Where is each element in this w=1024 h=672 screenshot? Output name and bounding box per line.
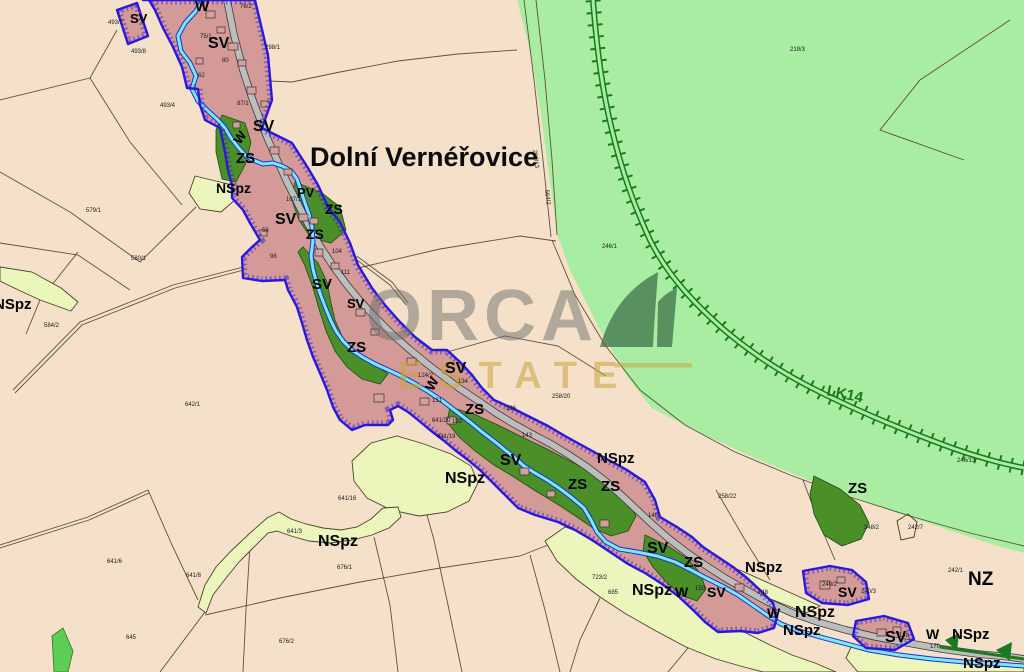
parcel-number-136: 136 <box>506 406 517 412</box>
zone-label-sv: SV <box>500 452 522 469</box>
zone-label-nspz: NSpz <box>632 582 672 599</box>
parcel-number-641-3: 641/3 <box>287 529 303 535</box>
zone-label-w: W <box>926 626 940 642</box>
parcel-number-641-20: 641/20 <box>432 418 451 424</box>
zone-label-zs: ZS <box>568 476 587 493</box>
zone-label-zs: ZS <box>684 554 703 571</box>
zone-label-zs: ZS <box>347 339 366 356</box>
zone-label-nspz: NSpz <box>0 296 32 313</box>
zone-label-zs: ZS <box>325 201 343 217</box>
parcel-number-240-3: 240/3 <box>861 589 877 595</box>
parcel-number-87-1: 87/1 <box>237 101 249 107</box>
parcel-number-641-16: 641/16 <box>338 496 357 502</box>
parcel-number-723-2: 723/2 <box>592 575 608 581</box>
parcel-number-641-6: 641/6 <box>107 559 123 565</box>
zone-label-pv: PV <box>297 185 315 200</box>
parcel-number-111: 111 <box>341 270 351 276</box>
parcel-number-676-2: 676/2 <box>279 639 295 645</box>
zone-label-nspz: NSpz <box>745 559 783 576</box>
zone-label-sv: SV <box>312 276 332 293</box>
zone-label-w: W <box>767 605 781 621</box>
zone-label-sv: SV <box>707 584 726 600</box>
zone-label-nspz: NSpz <box>952 626 990 643</box>
parcel-number-132: 132 <box>452 419 463 425</box>
zone-label-nspz: NSpz <box>795 604 835 621</box>
parcel-number-580-1: 580/1 <box>131 256 147 262</box>
parcel-number-584-2: 584/2 <box>44 323 60 329</box>
zone-label-zs: ZS <box>848 480 867 497</box>
parcel-number-76-2: 76/2 <box>240 4 252 10</box>
parcel-number-348-2: 348/2 <box>864 525 880 531</box>
zone-label-nspz: NSpz <box>445 470 485 487</box>
parcel-number-579-1: 579/1 <box>86 208 102 214</box>
zone-label-sv: SV <box>647 540 669 557</box>
parcel-number-219-3: 219/3 <box>790 47 806 53</box>
zone-label-nz: NZ <box>968 569 994 590</box>
zone-label-sv: SV <box>445 360 467 377</box>
zone-label-zs: ZS <box>306 226 324 242</box>
parcel-number-493-4: 493/4 <box>160 103 176 109</box>
parcel-number-685: 685 <box>608 590 619 596</box>
zone-label-w: W <box>675 584 689 600</box>
parcel-number-641-8: 641/8 <box>186 573 202 579</box>
zone-label-nspz: NSpz <box>318 533 358 550</box>
parcel-number-80: 80 <box>222 58 229 64</box>
parcel-number-641-19: 641/19 <box>437 434 456 440</box>
parcel-number-645: 645 <box>126 635 137 641</box>
parcel-number-104: 104 <box>332 249 343 255</box>
parcel-number-246-13: 246/13 <box>957 458 976 464</box>
zone-label-sv: SV <box>347 296 365 311</box>
parcel-number-148: 148 <box>648 513 659 519</box>
zone-label-sv: SV <box>253 118 275 135</box>
parcel-number-134: 134 <box>458 379 469 385</box>
zone-label-sv: SV <box>885 629 907 646</box>
parcel-number-258-20: 258/20 <box>552 394 571 400</box>
zone-label-zs: ZS <box>236 150 255 167</box>
parcel-number-58: 58 <box>262 228 269 234</box>
zone-label-sv: SV <box>275 211 297 228</box>
parcel-number-242-1: 242/1 <box>948 568 964 574</box>
parcel-number-298-1: 298/1 <box>265 45 281 51</box>
zone-label-sv: SV <box>838 584 857 600</box>
zone-label-w: W <box>195 0 210 15</box>
parcel-number-62: 62 <box>198 73 205 79</box>
zone-label-sv: SV <box>208 35 230 52</box>
parcel-number-131: 131 <box>432 398 443 404</box>
watermark-rule <box>614 363 692 368</box>
watermark-brand-text: ORCA <box>366 276 598 356</box>
zone-label-nspz: NSpz <box>963 655 1001 672</box>
parcel-number-98: 98 <box>270 254 277 260</box>
parcel-number-676-1: 676/1 <box>337 565 353 571</box>
zoning-map-canvas[interactable]: ORCA ESTATE Dolní Vernéřovice 493/7493/8… <box>0 0 1024 672</box>
parcel-number-493-7: 493/7 <box>108 20 124 26</box>
map-viewport[interactable]: ORCA ESTATE Dolní Vernéřovice 493/7493/8… <box>0 0 1024 672</box>
parcel-number-242-7: 242/7 <box>908 525 924 531</box>
zone-label-zs: ZS <box>601 478 620 495</box>
parcel-number-170: 170 <box>930 644 941 650</box>
parcel-number-258-22: 258/22 <box>718 494 737 500</box>
zone-label-nspz: NSpz <box>783 622 821 639</box>
zone-label-nspz: NSpz <box>597 450 635 467</box>
zone-label-zs: ZS <box>465 401 484 418</box>
parcel-number-240-2: 240/2 <box>822 582 838 588</box>
zone-label-sv: SV <box>130 11 148 26</box>
zone-label-nspz: NSpz <box>216 180 251 196</box>
parcel-number-493-8: 493/8 <box>131 49 147 55</box>
parcel-number-148: 148 <box>758 590 769 596</box>
parcel-number-246-1: 246/1 <box>602 244 618 250</box>
parcel-number-642-1: 642/1 <box>185 402 201 408</box>
parcel-number-143: 143 <box>522 433 533 439</box>
page-title: Dolní Vernéřovice <box>310 142 538 172</box>
parcel-number-150: 150 <box>695 586 706 592</box>
